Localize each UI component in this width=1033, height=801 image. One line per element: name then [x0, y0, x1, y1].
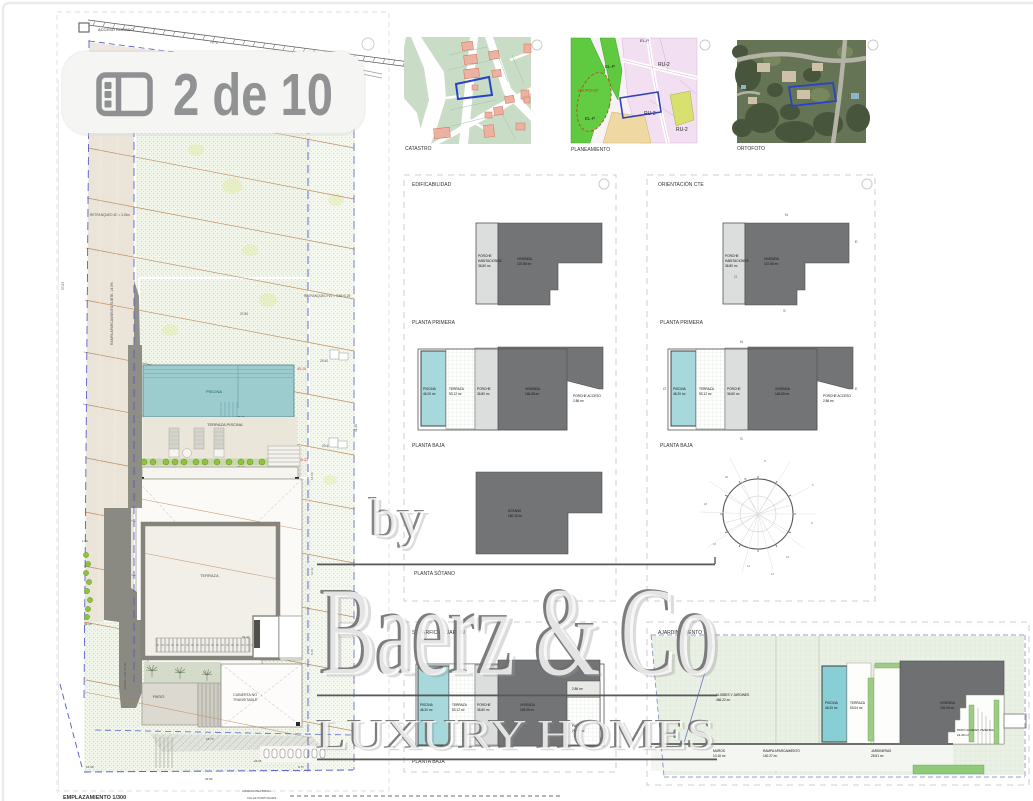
svg-text:RU-2: RU-2 — [658, 62, 670, 68]
svg-text:137.80 m²: 137.80 m² — [517, 262, 531, 266]
svg-text:PLANTA PRIMERA: PLANTA PRIMERA — [412, 320, 456, 326]
svg-text:25.81 m²: 25.81 m² — [871, 754, 884, 758]
svg-text:PORCHE: PORCHE — [477, 387, 491, 391]
svg-text:160.10 m²: 160.10 m² — [508, 514, 522, 518]
svg-text:137.80 m²: 137.80 m² — [764, 262, 778, 266]
svg-text:PISCINA: PISCINA — [825, 701, 839, 705]
svg-text:VIVIENDA: VIVIENDA — [764, 257, 780, 261]
svg-text:21.40 m²: 21.40 m² — [957, 733, 969, 737]
svg-text:ACCESO RODADO: ACCESO RODADO — [98, 27, 134, 32]
svg-text:N: N — [785, 212, 788, 217]
svg-text:HABITACIONES: HABITACIONES — [725, 259, 749, 263]
svg-text:57.03: 57.03 — [61, 282, 65, 290]
svg-text:Baerz & Co: Baerz & Co — [321, 564, 718, 703]
svg-text:46.20 m²: 46.20 m² — [673, 392, 686, 396]
svg-text:RAMPA APARCAMIENTO: RAMPA APARCAMIENTO — [763, 749, 800, 753]
svg-text:24.36: 24.36 — [254, 759, 262, 763]
svg-text:36.80 m²: 36.80 m² — [725, 264, 738, 268]
svg-text:PORCHE ACCESO: PORCHE ACCESO — [573, 394, 601, 398]
svg-text:PATIO: PATIO — [153, 694, 164, 699]
svg-text:EL-P: EL-P — [605, 64, 615, 69]
svg-text:VIVIENDA: VIVIENDA — [525, 387, 541, 391]
svg-text:12: 12 — [771, 572, 775, 576]
svg-text:N: N — [740, 339, 743, 344]
svg-text:VIVIENDA: VIVIENDA — [517, 257, 533, 261]
svg-text:S: S — [740, 436, 743, 441]
svg-text:RETRANQUEO H/2 = 3.89+0.25: RETRANQUEO H/2 = 3.89+0.25 — [304, 294, 350, 298]
svg-text:36.80 m²: 36.80 m² — [727, 392, 740, 396]
svg-text:49.14: 49.14 — [84, 622, 92, 626]
svg-text:53.12 m²: 53.12 m² — [449, 392, 462, 396]
svg-text:27.80: 27.80 — [240, 312, 248, 316]
svg-text:CUBIERTA NO: CUBIERTA NO — [233, 693, 257, 697]
svg-text:O: O — [734, 274, 737, 279]
svg-text:LUXURY HOMES: LUXURY HOMES — [317, 713, 715, 759]
svg-text:36.80 m²: 36.80 m² — [478, 264, 491, 268]
svg-text:by: by — [371, 488, 427, 550]
svg-text:9h: 9h — [744, 477, 748, 481]
svg-text:ACERA + LIN 14.5%: ACERA + LIN 14.5% — [123, 662, 127, 690]
svg-text:15.38: 15.38 — [86, 765, 94, 769]
svg-text:16.73: 16.73 — [206, 737, 214, 741]
svg-text:PISCINA: PISCINA — [206, 389, 222, 394]
svg-text:PORCHE ACCESO: PORCHE ACCESO — [823, 394, 851, 398]
svg-text:2.86 m²: 2.86 m² — [573, 399, 584, 403]
svg-text:18.60: 18.60 — [310, 472, 314, 480]
svg-text:RETRANQUEO 4D = 3.25m: RETRANQUEO 4D = 3.25m — [90, 213, 130, 217]
svg-text:EDIFICABILIDAD: EDIFICABILIDAD — [412, 182, 452, 188]
svg-text:PATIO ACCESO VIVIENDA: PATIO ACCESO VIVIENDA — [957, 728, 994, 732]
svg-text:S: S — [783, 308, 786, 313]
svg-text:46.20 m²: 46.20 m² — [423, 392, 436, 396]
svg-text:PORCHE: PORCHE — [727, 387, 741, 391]
svg-text:1.06: 1.06 — [82, 539, 88, 543]
svg-text:PORCHE: PORCHE — [478, 254, 492, 258]
svg-text:146.05 m²: 146.05 m² — [775, 392, 789, 396]
svg-text:46.20 m²: 46.20 m² — [825, 706, 838, 710]
svg-text:9.77: 9.77 — [298, 765, 304, 769]
svg-text:146.05 m²: 146.05 m² — [940, 706, 954, 710]
svg-text:TRANSITABLE: TRANSITABLE — [233, 698, 258, 702]
svg-text:45.15: 45.15 — [297, 367, 306, 371]
svg-text:PLANTA BAJA: PLANTA BAJA — [412, 443, 445, 449]
svg-text:CALLE PORTUGUES: CALLE PORTUGUES — [247, 796, 276, 800]
svg-text:41.30: 41.30 — [354, 424, 358, 432]
svg-text:EMPLAZAMIENTO 1/300: EMPLAZAMIENTO 1/300 — [63, 795, 126, 801]
svg-text:ORTOFOTO: ORTOFOTO — [737, 146, 765, 152]
svg-text:PISCINA: PISCINA — [423, 387, 437, 391]
svg-text:HABITACIONES: HABITACIONES — [478, 259, 502, 263]
svg-text:36.80 m²: 36.80 m² — [477, 392, 490, 396]
svg-text:PLANEAMIENTO: PLANEAMIENTO — [571, 147, 610, 153]
svg-text:146.05 m²: 146.05 m² — [525, 392, 539, 396]
svg-text:E: E — [855, 239, 858, 244]
svg-text:JARDINERAS: JARDINERAS — [871, 749, 891, 753]
svg-text:53.04 m²: 53.04 m² — [850, 706, 863, 710]
svg-text:TERRAZA: TERRAZA — [449, 387, 465, 391]
svg-text:VIVIENDA: VIVIENDA — [940, 701, 956, 705]
svg-text:12.42: 12.42 — [310, 567, 314, 575]
svg-text:E: E — [855, 386, 858, 391]
svg-text:18: 18 — [704, 502, 708, 506]
svg-text:TERRAZA: TERRAZA — [850, 701, 866, 705]
svg-text:29.40: 29.40 — [320, 359, 328, 363]
svg-text:PORCHE: PORCHE — [725, 254, 739, 258]
svg-text:N: N — [764, 459, 766, 463]
svg-text:16: 16 — [713, 542, 717, 546]
svg-text:TERRAZA: TERRAZA — [699, 387, 715, 391]
svg-text:TERRAZA PISCINA: TERRAZA PISCINA — [207, 422, 243, 427]
svg-text:49.21: 49.21 — [299, 458, 308, 462]
svg-text:CATASTRO: CATASTRO — [405, 146, 432, 152]
svg-text:PLANTA PRIMERA: PLANTA PRIMERA — [660, 320, 704, 326]
svg-text:UA PO-07: UA PO-07 — [578, 88, 599, 93]
svg-text:SÓTANO: SÓTANO — [508, 508, 522, 513]
svg-text:32.86: 32.86 — [205, 777, 213, 781]
svg-text:14: 14 — [747, 564, 751, 568]
svg-text:53.12 m²: 53.12 m² — [699, 392, 712, 396]
svg-text:O: O — [663, 386, 666, 391]
svg-text:ORIENTACIÓN CTE: ORIENTACIÓN CTE — [658, 181, 704, 188]
svg-text:TERRAZA: TERRAZA — [200, 573, 219, 578]
svg-text:VIVIENDA: VIVIENDA — [775, 387, 791, 391]
svg-text:09.42: 09.42 — [242, 635, 250, 639]
svg-text:EL-P: EL-P — [640, 38, 649, 43]
svg-text:PISCINA: PISCINA — [673, 387, 687, 391]
svg-text:ACCESO PEATONAL: ACCESO PEATONAL — [242, 789, 272, 793]
svg-text:20: 20 — [725, 475, 729, 479]
svg-text:2 de 10: 2 de 10 — [173, 62, 333, 128]
svg-text:EL-P: EL-P — [585, 116, 595, 121]
svg-text:RU-2: RU-2 — [676, 127, 688, 133]
svg-text:RAMPA APARCAMIENTO SUBTE. 14.5: RAMPA APARCAMIENTO SUBTE. 14.5% — [110, 282, 114, 345]
svg-text:2.86 m²: 2.86 m² — [823, 399, 834, 403]
svg-text:140.27 m²: 140.27 m² — [763, 754, 777, 758]
svg-text:10: 10 — [786, 555, 790, 559]
svg-text:PLANTA BAJA: PLANTA BAJA — [660, 443, 693, 449]
svg-text:8.15: 8.15 — [310, 649, 314, 655]
